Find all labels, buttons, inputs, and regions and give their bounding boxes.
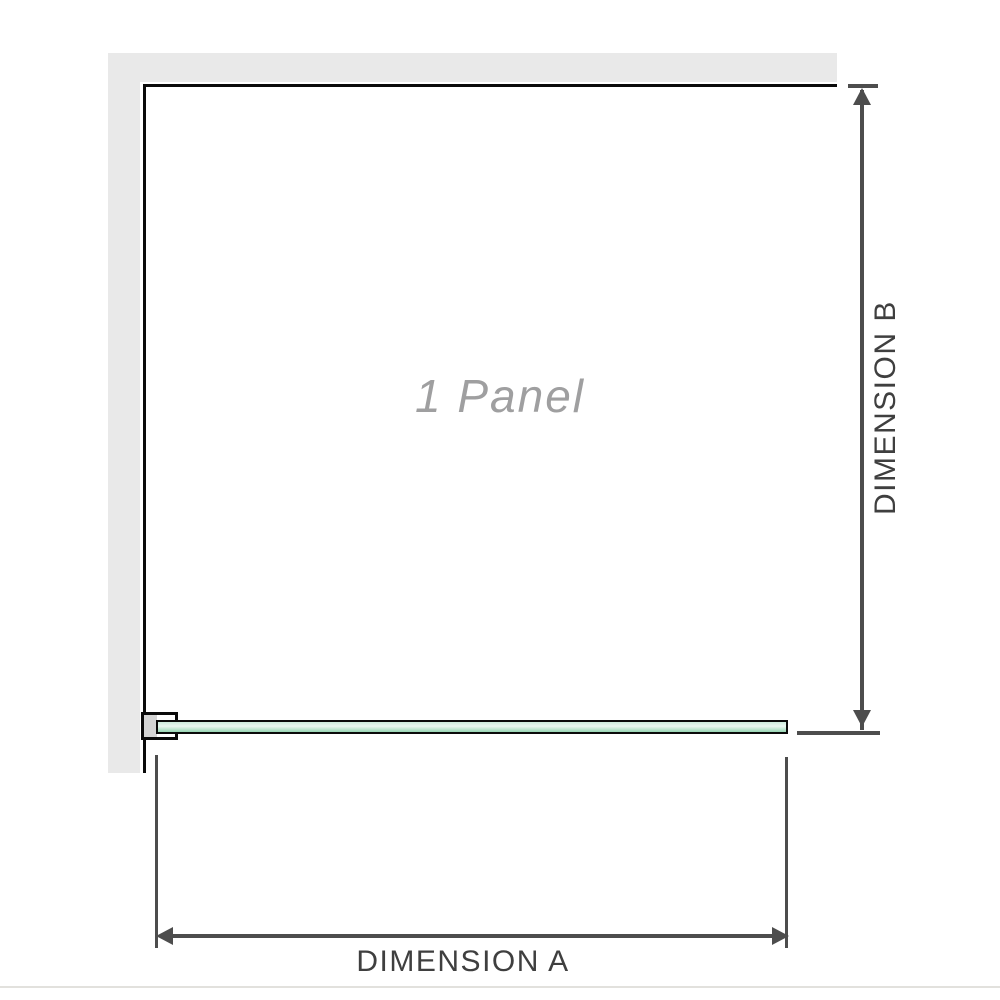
image-bottom-border [0, 986, 1000, 988]
wall-left [108, 53, 140, 773]
dimension-a-left-extension-line [155, 755, 158, 948]
dimension-b-bottom-tick [797, 731, 880, 735]
panel-area-top-edge [143, 84, 837, 87]
panel-area-left-edge [143, 84, 146, 773]
arrow-down-icon [853, 710, 871, 727]
arrow-right-icon [772, 927, 789, 945]
dimension-a-right-extension-line [785, 757, 788, 948]
shower-panel-dimension-diagram: 1 Panel DIMENSION B DIMENSION A [0, 0, 1000, 1000]
glass-panel [156, 720, 788, 734]
wall-top [108, 53, 837, 82]
dimension-b-line [860, 90, 864, 730]
dimension-a-label: DIMENSION A [313, 945, 613, 979]
panel-count-label: 1 Panel [340, 366, 660, 426]
arrow-up-icon [853, 88, 871, 105]
arrow-left-icon [156, 927, 173, 945]
dimension-b-label: DIMENSION B [870, 315, 902, 515]
dimension-a-line [160, 934, 785, 938]
